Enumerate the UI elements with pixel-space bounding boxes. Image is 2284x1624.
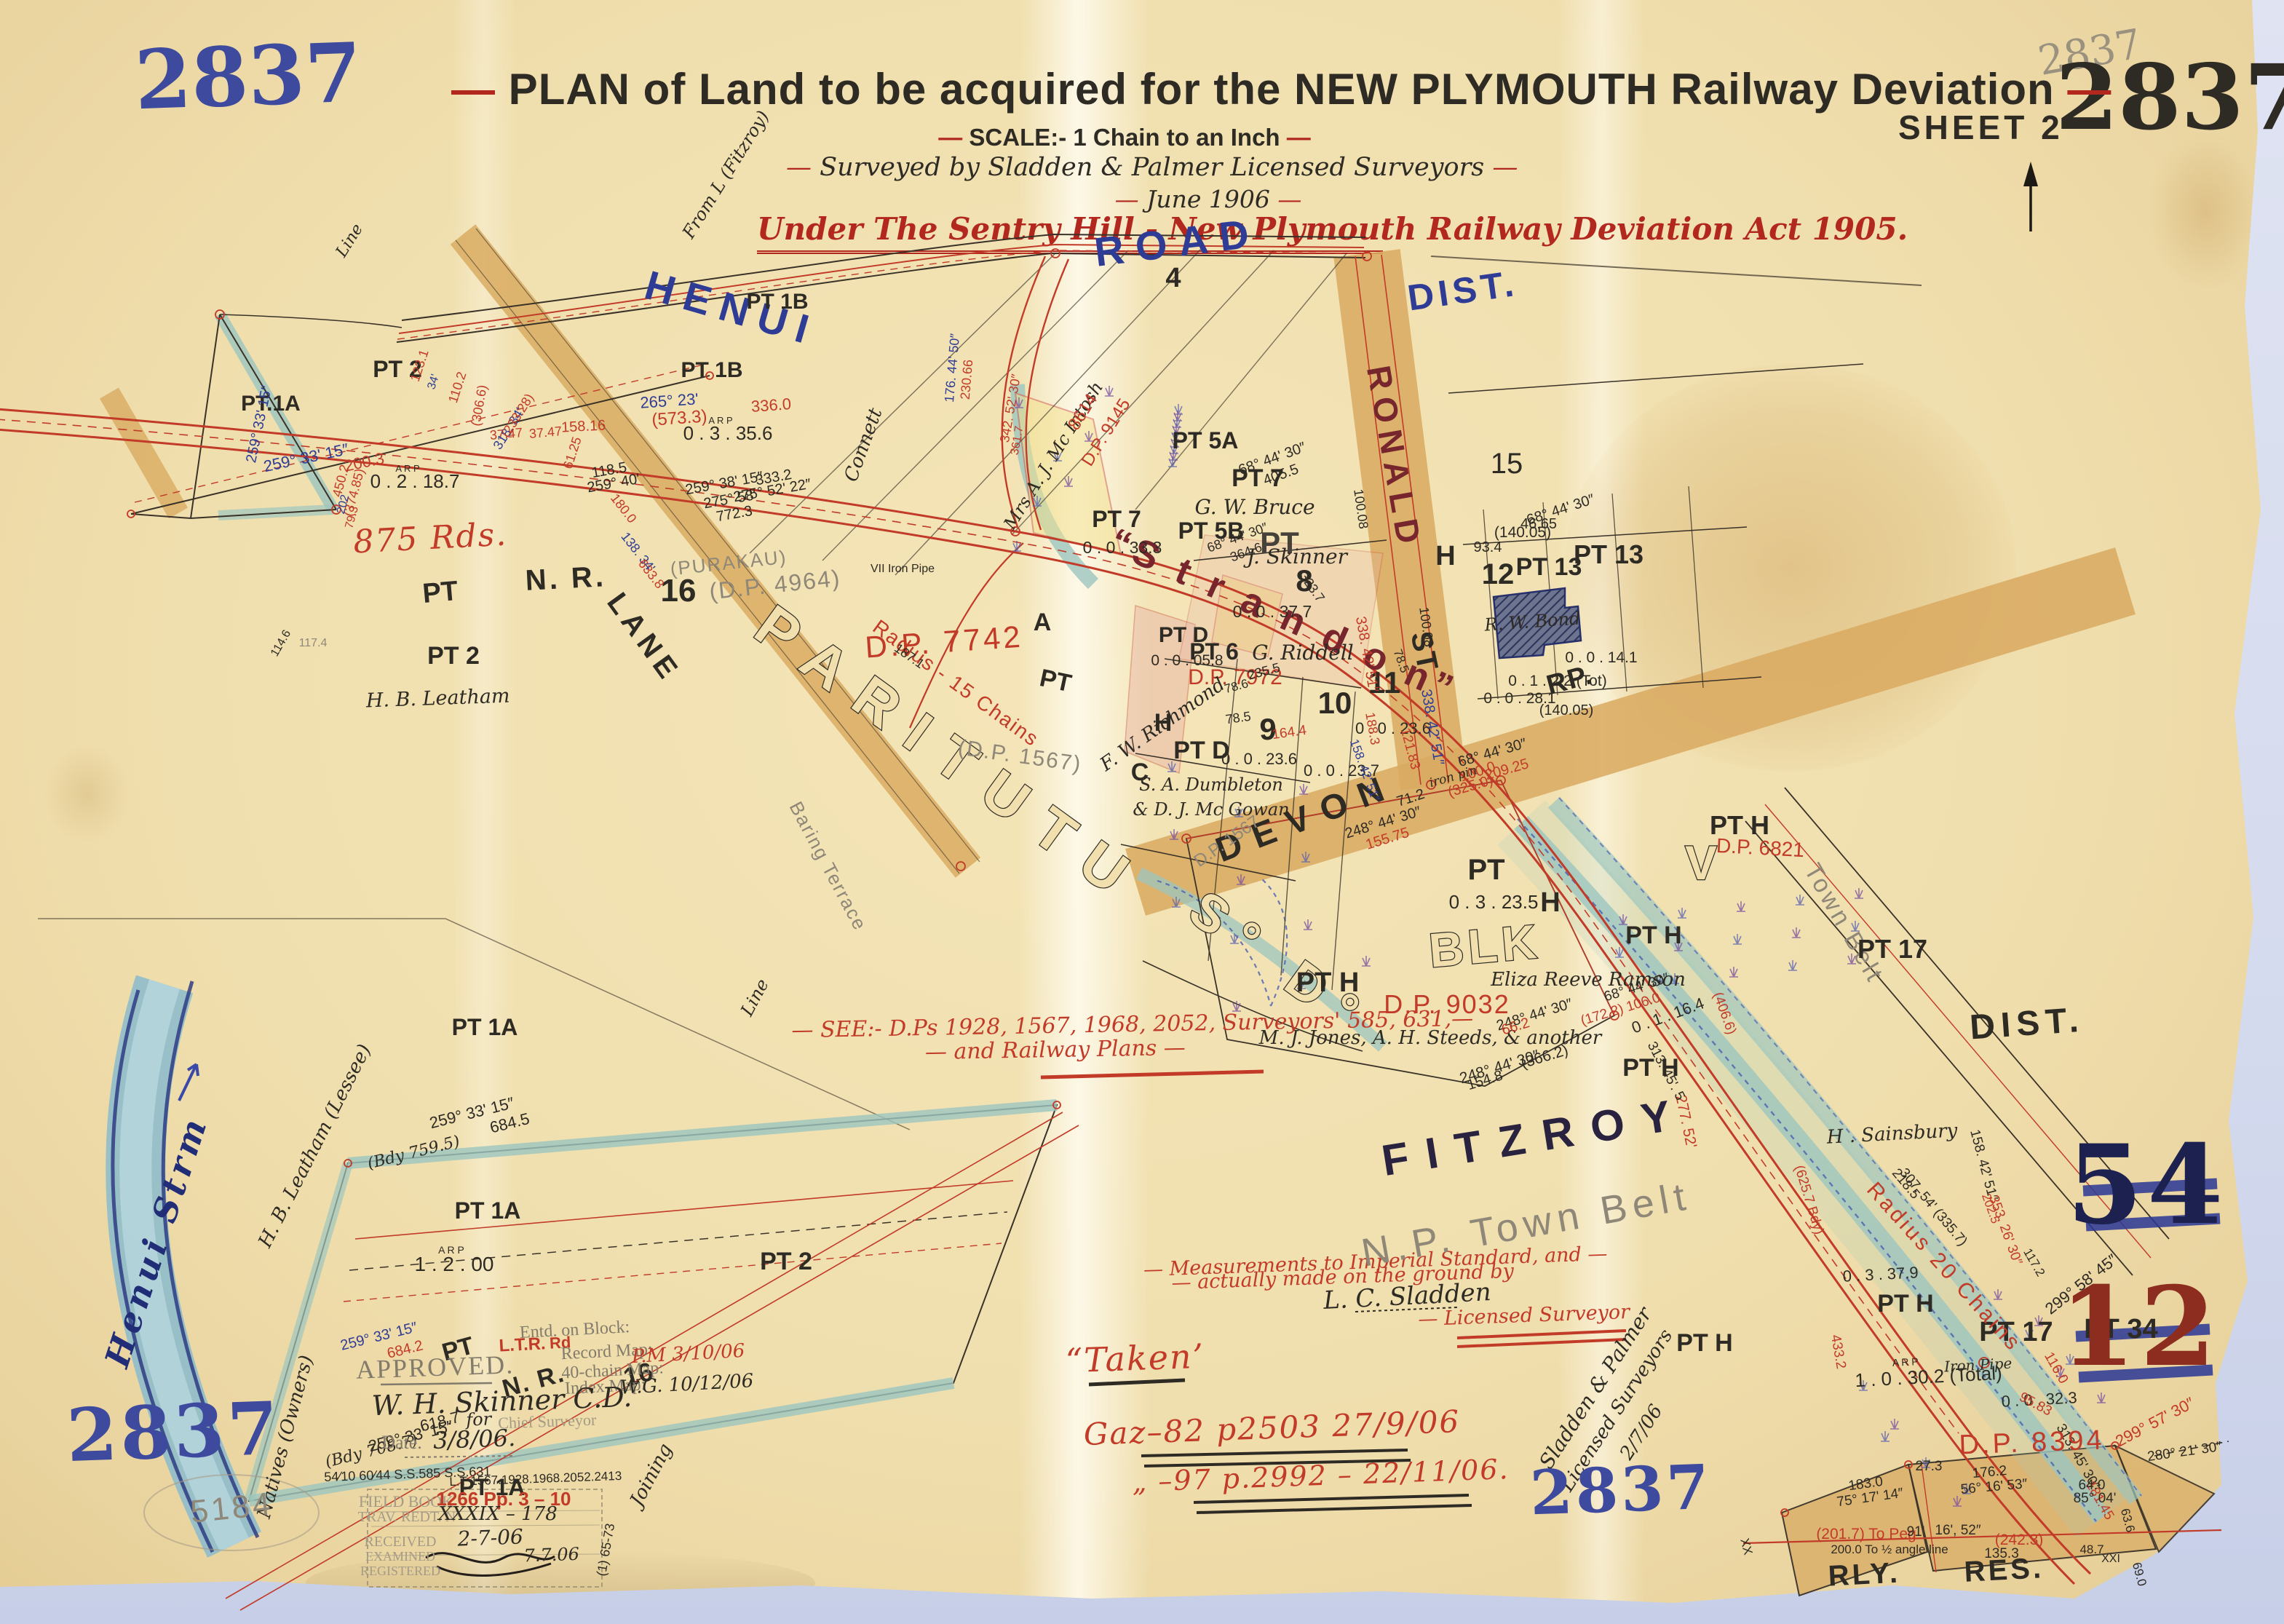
map-label: PT H: [1625, 922, 1681, 949]
map-label: 48.7: [2079, 1542, 2103, 1556]
map-label: 37.47: [528, 424, 563, 441]
map-label: 4: [1165, 263, 1181, 293]
rail-line-a: [0, 409, 2090, 1574]
map-label: PT 1B: [746, 290, 808, 314]
map-label: 110.2: [445, 370, 469, 405]
map-label: PT H: [1877, 1290, 1933, 1318]
map-label: Gaz–82 p2503 27/9/06: [1083, 1403, 1461, 1452]
map-label: PT H: [1676, 1329, 1732, 1357]
map-label: BLK: [1427, 914, 1543, 978]
map-label: Connett: [840, 405, 887, 485]
map-label: DIST.: [1969, 1001, 2086, 1047]
map-label: PT 7: [1092, 506, 1141, 532]
grass-tuft-icon: [1881, 1431, 1890, 1441]
map-label: S. A. Dumbleton: [1139, 775, 1283, 795]
map-label: 69.0: [2130, 1561, 2149, 1588]
flow-arrow-icon: [179, 1064, 198, 1101]
map-label: „ –97 p.2992 – 22/11/06.: [1132, 1453, 1510, 1498]
map-label: (306.6): [468, 384, 490, 427]
map-label: 336.0: [750, 395, 792, 416]
grass-tuft-icon: [1733, 934, 1742, 944]
map-label: Joining: [624, 1440, 677, 1513]
map-label: 0 . 0 . 05.8: [1151, 652, 1223, 669]
survey-map-canvas: HENUIROADDIST.DIST.4PARITUTUS° D°BLKVN. …: [0, 0, 2284, 1624]
map-label: 27.3: [1916, 1459, 1943, 1474]
map-label: RECEIVED: [365, 1534, 437, 1550]
map-label: 78.5: [1224, 709, 1251, 727]
map-label: PT D: [1159, 623, 1208, 647]
map-label: Town Belt: [1799, 859, 1890, 989]
map-label: 16', 52″: [1935, 1523, 1980, 1538]
map-label: 164.4: [1271, 723, 1307, 742]
grass-tuft-icon: [1788, 960, 1797, 970]
map-label: V: [1685, 836, 1717, 890]
map-label: Line: [332, 221, 367, 261]
map-label: Iron Pipe: [1943, 1355, 2012, 1376]
grass-tuft-icon: [1994, 1289, 2002, 1299]
map-label: — and Railway Plans —: [925, 1035, 1186, 1065]
grass-tuft-icon: [1105, 386, 1114, 396]
grass-tuft-icon: [1173, 417, 1181, 427]
map-label: RLY.: [1828, 1556, 1901, 1592]
map-label: 299° 57' 30″: [2112, 1393, 2197, 1450]
map-label: G. Riddell: [1252, 641, 1354, 665]
map-label: Baring Terrace: [785, 798, 872, 935]
map-label: 188.3: [1363, 711, 1383, 746]
map-label: PT 5A: [1173, 427, 1239, 453]
map-label: 15: [1491, 448, 1523, 480]
map-label: 0 . 0 . 37.7: [1233, 602, 1312, 621]
map-label: & D. J. Mc Gowan: [1133, 799, 1289, 820]
north-arrow-icon: [2023, 162, 2038, 231]
rail-line-b: [0, 429, 2074, 1584]
map-label: 0 . 0 . 14.1: [1565, 649, 1637, 666]
grass-tuft-icon: [1362, 956, 1371, 966]
map-label: XX: [1737, 1537, 1755, 1556]
scanned-survey-plan: 2837 2837 SHEET 2 2837 — PLAN of Land to…: [0, 0, 2284, 1624]
map-label: 61.25: [560, 435, 584, 471]
grass-tuft-icon: [1304, 919, 1312, 930]
map-label: XXXIX – 178: [437, 1503, 557, 1525]
map-label: G. W. Bruce: [1194, 495, 1315, 519]
map-label: 158.16: [561, 417, 606, 435]
map-label: 117.4: [299, 637, 328, 649]
map-label: H: [1540, 887, 1560, 918]
map-label: 0 . 0 . 33.3: [1083, 538, 1162, 557]
map-label: A R P: [708, 415, 732, 426]
map-label: 875 Rds.: [352, 516, 508, 561]
map-label: 114.6: [269, 628, 293, 659]
map-label: 117.2: [2021, 1246, 2047, 1279]
map-label: 91': [1907, 1524, 1925, 1540]
map-label: A R P: [1892, 1355, 1919, 1368]
east-block-lines: [1483, 486, 1703, 699]
grass-tuft-icon: [1174, 404, 1183, 414]
map-label: A R P: [438, 1244, 464, 1256]
map-label: 135.3: [1984, 1546, 2019, 1561]
map-label: 1 . 2 . 00: [415, 1253, 494, 1275]
map-label: H: [1435, 541, 1455, 571]
map-label: PT: [421, 576, 459, 609]
map-label: PT 17: [1857, 934, 1927, 964]
map-label: 0 . 0 . 23.6: [1221, 750, 1297, 768]
map-label: 68° 44' 30″: [1525, 491, 1597, 528]
map-label: FITZROY: [1379, 1088, 1692, 1185]
map-label: 2837: [1528, 1451, 1713, 1529]
map-label: 0 . 1 . 2.2 (Tot): [1508, 673, 1606, 689]
map-label: A R P: [395, 463, 419, 474]
map-label: VII Iron Pipe: [871, 563, 935, 575]
map-label: H. B. Leatham (Lessee): [254, 1041, 376, 1252]
map-label: H. B. Leatham: [365, 685, 510, 713]
map-label: 2837: [66, 1385, 282, 1478]
inset-red-a: [355, 1181, 1013, 1239]
map-label: 12: [2060, 1263, 2221, 1391]
map-label: PT 13: [1574, 539, 1643, 569]
map-label: Date.: [381, 1432, 422, 1453]
map-label: C: [1131, 758, 1149, 786]
map-label: 12: [1482, 558, 1515, 590]
map-label: PT 2: [427, 642, 480, 670]
map-label: PT D: [1173, 737, 1229, 764]
map-label: XXI: [2101, 1553, 2120, 1565]
grass-tuft-icon: [1737, 901, 1745, 911]
grass-tuft-icon: [1890, 1419, 1899, 1429]
map-label: DIST.: [1405, 263, 1520, 319]
grass-tuft-icon: [1796, 895, 1804, 905]
map-label: Eliza Reeve Ramson: [1490, 969, 1686, 991]
map-label: 433.2: [1828, 1334, 1849, 1370]
grass-tuft-icon: [1678, 908, 1686, 918]
grass-tuft-icon: [1729, 967, 1738, 977]
map-label: N. R.: [525, 561, 607, 597]
map-label: 200.0 To ½ angle line: [1831, 1542, 1948, 1556]
map-label: “Taken’: [1065, 1336, 1205, 1381]
map-label: A: [1034, 609, 1052, 636]
map-label: PT 1A: [452, 1014, 518, 1040]
map-label: PT 1A: [455, 1197, 521, 1224]
map-label: 10: [1318, 686, 1352, 720]
map-label: 85° 04': [2074, 1491, 2117, 1506]
map-label: 0 . 3 . 23.5: [1449, 891, 1539, 913]
map-label: 3/8/06.: [432, 1424, 515, 1454]
map-label: PT: [1467, 854, 1504, 886]
map-label: REGISTERED: [360, 1564, 440, 1578]
map-label: EXAMINED: [365, 1549, 435, 1564]
map-label: 158. 42' 51″: [1967, 1128, 2000, 1202]
map-label: PT H: [1710, 810, 1769, 840]
map-label: 7.7.06: [523, 1544, 579, 1566]
map-label: PT: [1037, 664, 1074, 697]
map-label: Line: [737, 975, 773, 1020]
map-label: PT 13: [1516, 553, 1582, 581]
map-label: (140.05): [1539, 702, 1594, 718]
map-label: 280° 21' 30″: [2146, 1439, 2223, 1465]
grass-tuft-icon: [1792, 927, 1801, 938]
map-label: (1) 65-73: [594, 1522, 617, 1577]
map-label: PT 2: [760, 1248, 812, 1275]
map-label: 34': [425, 373, 442, 391]
map-label: H . Sainsbury: [1825, 1120, 1958, 1148]
grass-tuft-icon: [1855, 888, 1863, 898]
map-label: 5184: [189, 1486, 274, 1530]
map-label: D.P. 8394: [1959, 1425, 2105, 1461]
road-left-stub: [109, 393, 178, 513]
map-label: 230.66: [958, 359, 976, 400]
map-label: APPROVED.: [355, 1350, 514, 1385]
map-label: PT 1B: [681, 358, 742, 382]
map-label: (Bdy 759.5): [365, 1133, 461, 1173]
map-label: 180.0: [608, 491, 639, 526]
map-label: 93.4: [1474, 539, 1502, 555]
grass-tuft-icon: [2097, 1393, 2106, 1403]
grass-tuft-icon: [1299, 784, 1308, 794]
map-label: From L (Fitzroy): [678, 107, 773, 242]
grass-tuft-icon: [1173, 411, 1182, 421]
map-label: PT H: [1296, 967, 1360, 998]
map-label: 54: [2067, 1121, 2228, 1249]
map-label: (201.7) To Peg: [1816, 1526, 1916, 1542]
road-nr-lane: [463, 234, 968, 868]
boundary: [220, 314, 402, 328]
map-label: 2-7-06: [456, 1524, 523, 1550]
